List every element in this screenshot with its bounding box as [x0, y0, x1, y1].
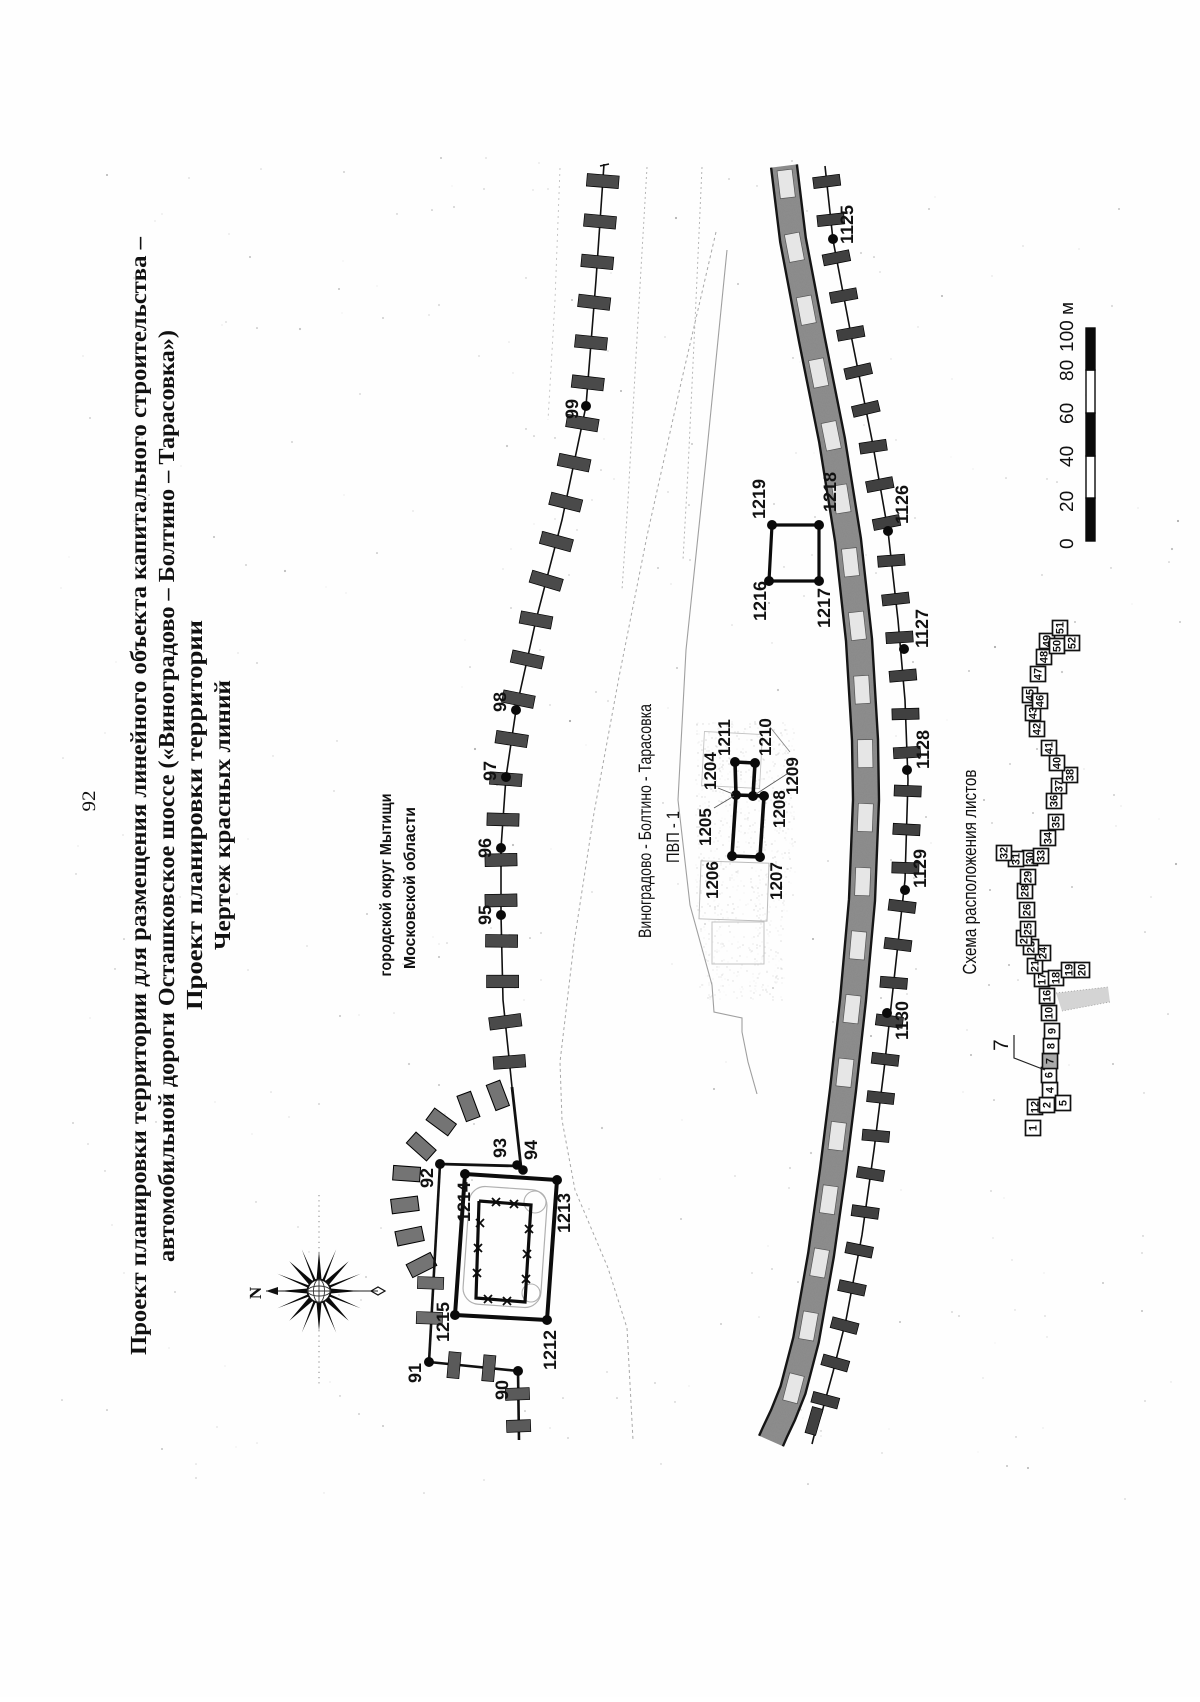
svg-text:1129: 1129 — [910, 849, 930, 888]
svg-text:Проект планировки территории д: Проект планировки территории для размеще… — [126, 236, 151, 1355]
svg-text:1208: 1208 — [770, 790, 789, 828]
svg-text:17: 17 — [1037, 973, 1049, 985]
svg-text:4: 4 — [1045, 1086, 1057, 1093]
svg-text:1211: 1211 — [715, 719, 734, 756]
svg-text:98: 98 — [490, 692, 510, 712]
svg-text:5: 5 — [1058, 1100, 1070, 1106]
svg-text:97: 97 — [480, 761, 500, 781]
svg-text:26: 26 — [1022, 904, 1034, 916]
svg-text:1219: 1219 — [749, 479, 769, 519]
svg-text:1206: 1206 — [703, 861, 722, 899]
svg-text:33: 33 — [1036, 850, 1048, 862]
svg-text:35: 35 — [1051, 816, 1063, 828]
svg-text:8: 8 — [1046, 1043, 1058, 1049]
svg-text:1217: 1217 — [814, 588, 834, 628]
svg-text:100 м: 100 м — [1057, 302, 1078, 352]
svg-text:1209: 1209 — [783, 757, 802, 795]
svg-text:1126: 1126 — [892, 485, 912, 524]
svg-text:Проект планировки территории: Проект планировки территории — [182, 620, 207, 1010]
svg-text:28: 28 — [1020, 885, 1032, 897]
svg-text:6: 6 — [1044, 1072, 1056, 1078]
svg-text:1: 1 — [1028, 1125, 1040, 1131]
svg-text:1128: 1128 — [913, 730, 933, 769]
svg-text:40: 40 — [1057, 446, 1078, 467]
svg-text:47: 47 — [1033, 668, 1045, 680]
svg-text:городской округ Мытищи: городской округ Мытищи — [378, 794, 395, 977]
svg-text:Схема расположения листов: Схема расположения листов — [960, 770, 981, 975]
svg-text:1125: 1125 — [837, 205, 857, 244]
svg-text:1213: 1213 — [554, 1193, 574, 1233]
svg-text:1127: 1127 — [912, 609, 932, 648]
svg-text:1216: 1216 — [750, 581, 770, 621]
svg-text:1215: 1215 — [433, 1302, 453, 1342]
svg-text:7: 7 — [990, 1039, 1013, 1051]
svg-text:99: 99 — [562, 399, 582, 419]
svg-text:46: 46 — [1035, 695, 1047, 707]
svg-text:21: 21 — [1030, 960, 1042, 972]
svg-text:Московской области: Московской области — [402, 807, 419, 969]
svg-text:10: 10 — [1044, 1007, 1056, 1019]
svg-text:автомобильной дороги Осташковс: автомобильной дороги Осташковское шоссе … — [154, 330, 179, 1262]
svg-text:Виноградово - Болтино - Тарасо: Виноградово - Болтино - Тарасовка — [635, 703, 655, 938]
svg-text:0: 0 — [1057, 538, 1078, 549]
svg-text:20: 20 — [1057, 491, 1078, 512]
svg-text:93: 93 — [490, 1138, 510, 1158]
svg-text:2: 2 — [1042, 1102, 1054, 1108]
svg-text:29: 29 — [1023, 871, 1035, 883]
svg-text:1212: 1212 — [540, 1330, 560, 1370]
svg-text:51: 51 — [1055, 622, 1067, 634]
svg-text:60: 60 — [1057, 403, 1078, 424]
svg-text:95: 95 — [475, 905, 495, 925]
svg-text:52: 52 — [1067, 637, 1079, 649]
svg-text:16: 16 — [1042, 990, 1054, 1002]
svg-text:38: 38 — [1065, 769, 1077, 781]
svg-text:ПВП - 1: ПВП - 1 — [663, 811, 683, 863]
svg-text:9: 9 — [1047, 1028, 1059, 1034]
svg-text:92: 92 — [417, 1168, 437, 1188]
svg-text:80: 80 — [1057, 360, 1078, 381]
svg-text:32: 32 — [999, 847, 1011, 859]
svg-text:Чертеж красных линий: Чертеж красных линий — [210, 680, 235, 950]
svg-text:40: 40 — [1052, 757, 1064, 769]
svg-text:41: 41 — [1044, 742, 1056, 754]
svg-text:1207: 1207 — [767, 862, 786, 900]
svg-text:1204: 1204 — [701, 752, 720, 790]
svg-text:92: 92 — [79, 791, 100, 812]
svg-text:96: 96 — [475, 838, 495, 858]
svg-text:25: 25 — [1023, 923, 1035, 935]
svg-text:91: 91 — [405, 1363, 425, 1383]
svg-text:34: 34 — [1043, 831, 1055, 844]
svg-text:1214: 1214 — [454, 1182, 474, 1222]
svg-text:94: 94 — [521, 1140, 541, 1160]
svg-text:36: 36 — [1049, 795, 1061, 807]
svg-text:20: 20 — [1077, 964, 1089, 976]
svg-text:1130: 1130 — [892, 1001, 912, 1040]
svg-text:1210: 1210 — [756, 718, 775, 756]
svg-text:1218: 1218 — [820, 472, 840, 512]
svg-text:50: 50 — [1052, 640, 1064, 652]
svg-text:42: 42 — [1032, 723, 1044, 735]
svg-text:90: 90 — [492, 1380, 512, 1400]
svg-text:1205: 1205 — [696, 808, 715, 846]
svg-text:7: 7 — [1045, 1058, 1057, 1064]
svg-text:N: N — [246, 1286, 265, 1299]
